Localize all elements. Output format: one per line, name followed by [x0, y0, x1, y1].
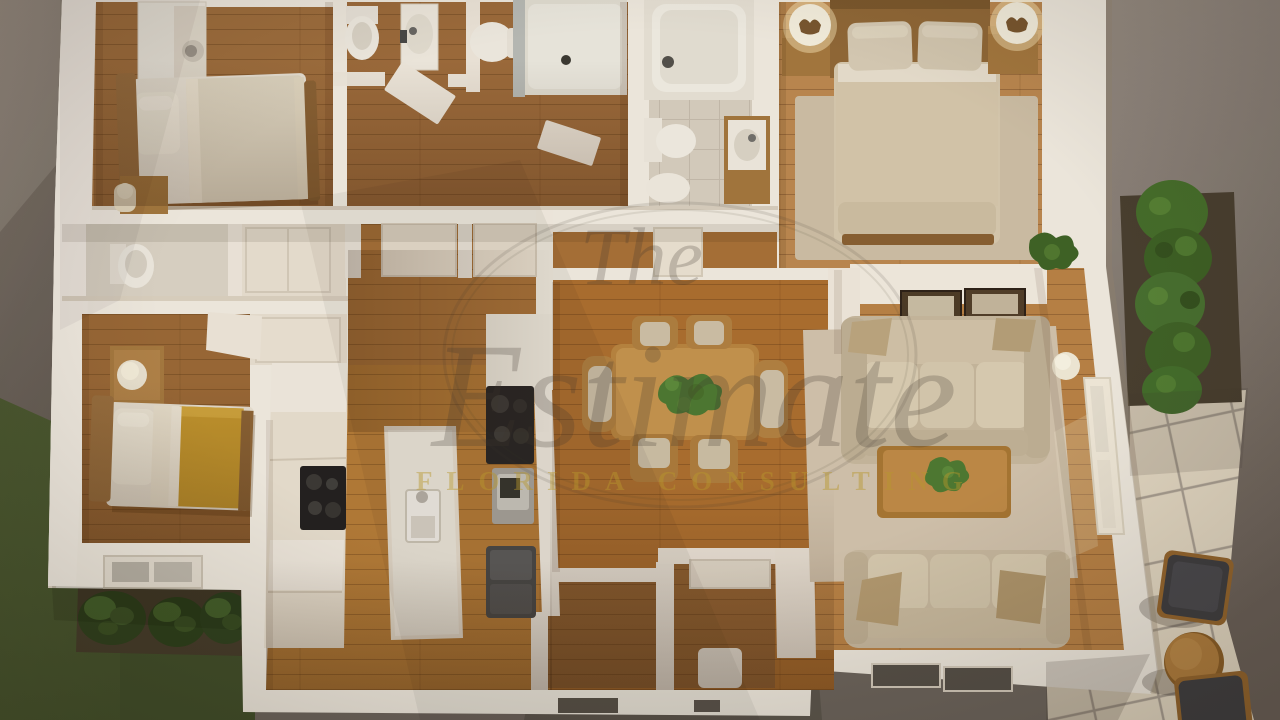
svg-text:FLORIDA CONSULTING: FLORIDA CONSULTING: [416, 466, 977, 496]
svg-text:Estimate: Estimate: [430, 313, 957, 479]
svg-text:The: The: [580, 211, 703, 302]
